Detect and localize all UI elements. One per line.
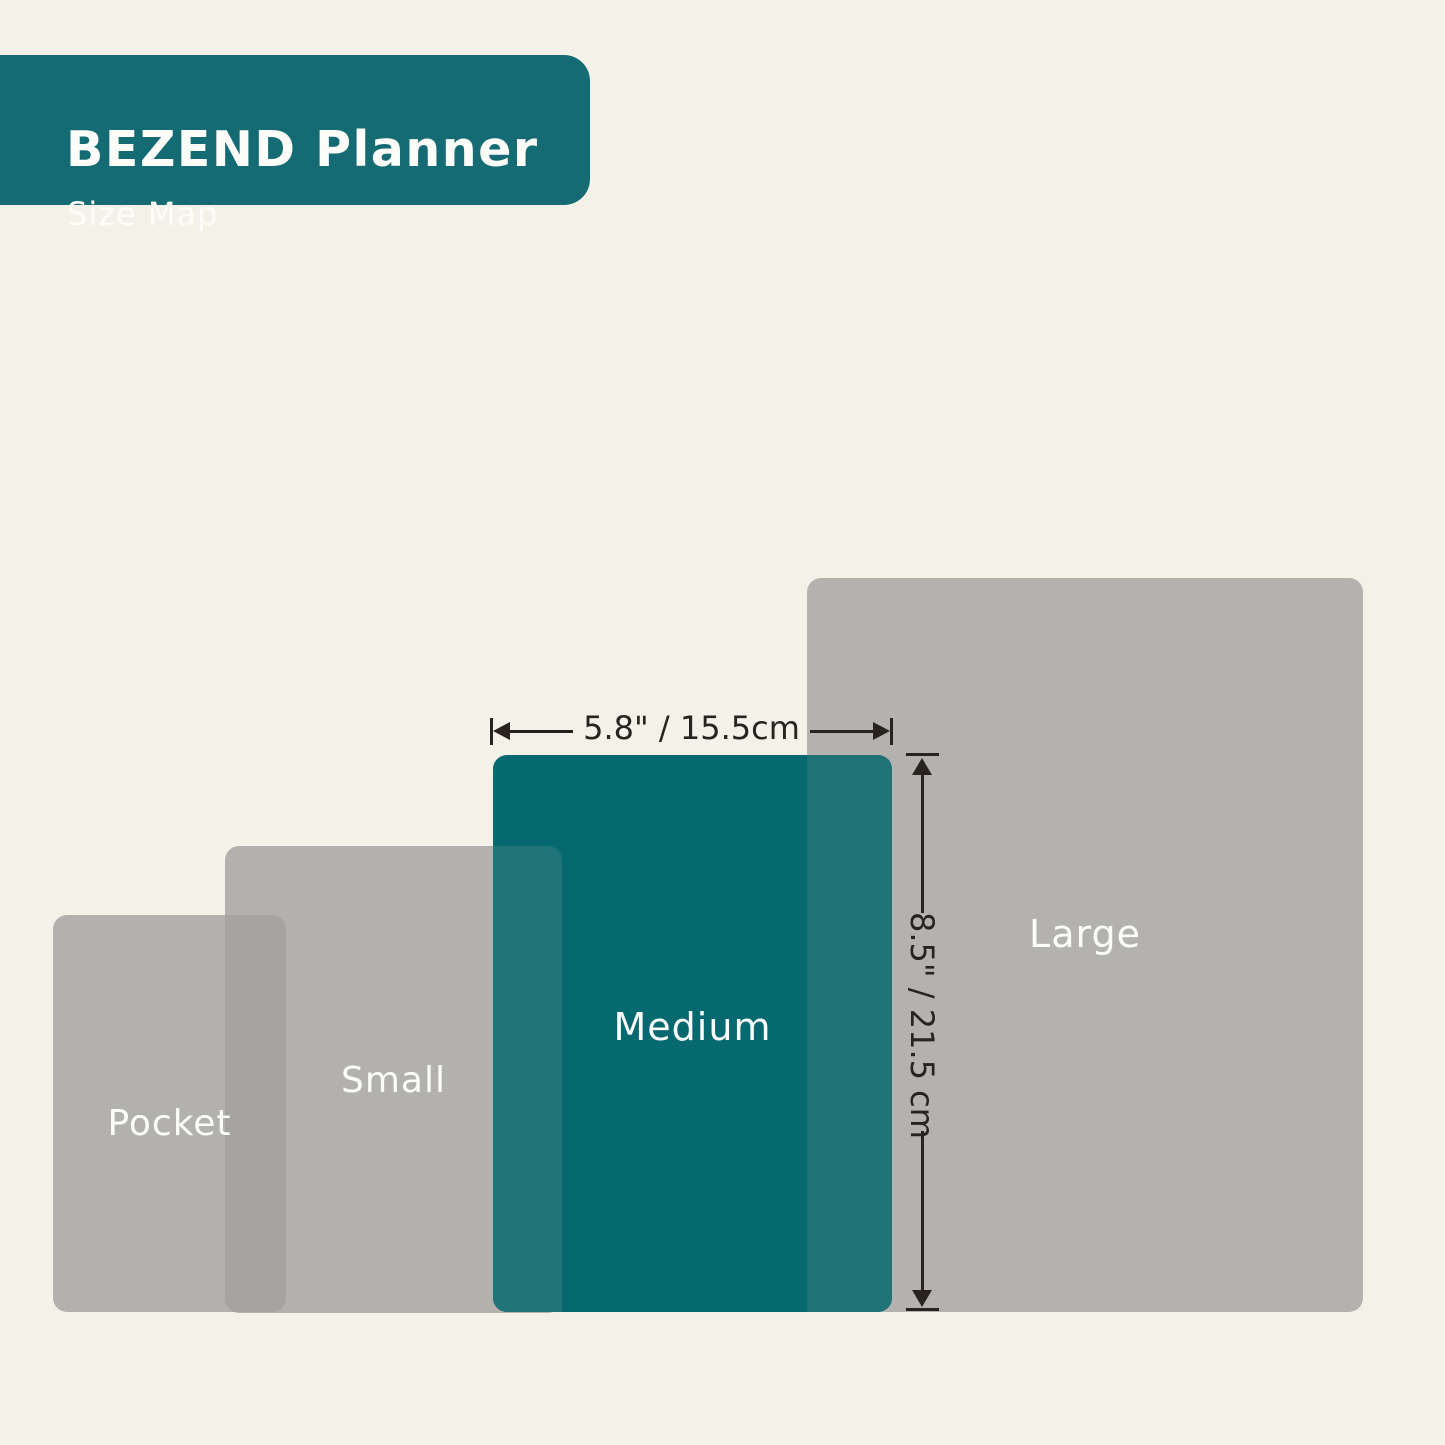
page-subtitle: Size Map	[67, 195, 218, 233]
arrow-left-icon	[493, 722, 510, 740]
arrow-up-icon	[912, 758, 932, 775]
size-label-pocket: Pocket	[53, 1103, 286, 1144]
dimension-line	[810, 730, 873, 733]
page-title: BEZEND Planner	[66, 121, 539, 178]
dimension-line	[921, 1131, 924, 1291]
arrow-right-icon	[873, 722, 890, 740]
size-label-medium: Medium	[493, 1005, 892, 1049]
width-dimension-arrow: 5.8" / 15.5cm	[490, 717, 893, 745]
dimension-line	[921, 775, 924, 913]
header-banner: BEZEND Planner Size Map	[0, 55, 590, 205]
width-dimension-label: 5.8" / 15.5cm	[573, 709, 810, 747]
dimension-tick	[906, 753, 939, 756]
medium-small-overlap	[493, 846, 562, 1312]
dimension-tick	[906, 1308, 939, 1311]
dimension-tick	[890, 718, 893, 745]
dimension-line	[510, 730, 573, 733]
size-rect-medium: Medium	[493, 755, 892, 1312]
arrow-down-icon	[912, 1290, 932, 1307]
height-dimension-label: 8.5" / 21.5 cm	[902, 912, 942, 1132]
size-rect-pocket: Pocket	[53, 915, 286, 1312]
